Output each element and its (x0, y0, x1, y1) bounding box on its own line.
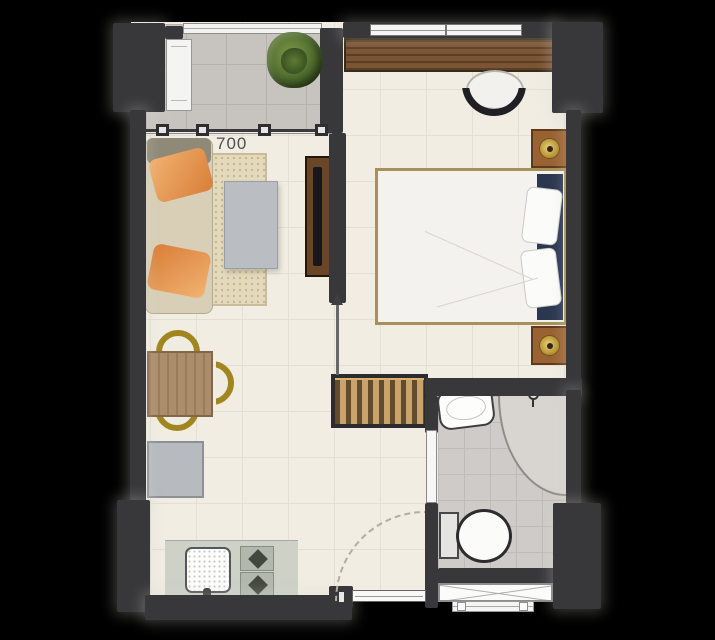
wall-bathroom-left-upper (425, 396, 438, 433)
bed-pillow-1 (521, 186, 564, 246)
balcony-slider-track (146, 129, 332, 132)
bedside-lamp-bottom (539, 335, 560, 356)
toilet-bowl (456, 509, 512, 563)
wall-bedroom-bathroom (425, 378, 582, 396)
slider-handle-2 (196, 124, 209, 136)
wall-balcony-right (320, 28, 343, 133)
ac-unit (166, 39, 192, 111)
floor-plan: 700 (0, 0, 715, 640)
bedroom-slider-arrow (331, 294, 343, 305)
wall-living-bedroom (329, 133, 346, 303)
ledge-rail (452, 601, 534, 612)
wall-bottom-kitchen (145, 595, 352, 620)
wall-right-bedroom (566, 110, 581, 396)
pillar-top-right (552, 22, 603, 113)
wall-bathroom-left-lower (425, 503, 438, 608)
bedroom-window (370, 24, 522, 36)
dining-chair-right (216, 359, 242, 409)
stove-burner-1 (240, 546, 274, 571)
kitchen-sink (185, 547, 231, 593)
wall-step-top-left (165, 26, 183, 39)
bedroom-slider-leaf (336, 305, 339, 375)
pillar-top-left (113, 23, 165, 112)
coffee-table (224, 181, 278, 269)
service-ledge (438, 583, 553, 602)
bedside-lamp-top (539, 138, 560, 159)
slider-handle-4 (315, 124, 328, 136)
entry-door-leaf (352, 590, 426, 602)
entry-door-swing-arc (335, 511, 425, 601)
shoe-dresser (331, 374, 428, 428)
plant (267, 32, 323, 88)
bathroom-door-leaf (426, 430, 437, 503)
pillar-bottom-right (553, 503, 601, 609)
wardrobe (344, 38, 554, 72)
dimension-label: 700 (216, 134, 276, 154)
desk-chair-back (458, 88, 532, 124)
dining-table (147, 351, 213, 417)
dining-chair-bottom (152, 414, 204, 440)
slider-handle-1 (156, 124, 169, 136)
wall-left (130, 110, 146, 504)
tv-screen (313, 167, 322, 266)
stove-burner-2 (240, 572, 274, 597)
refrigerator (147, 441, 204, 498)
bed-pillow-2 (520, 247, 563, 309)
